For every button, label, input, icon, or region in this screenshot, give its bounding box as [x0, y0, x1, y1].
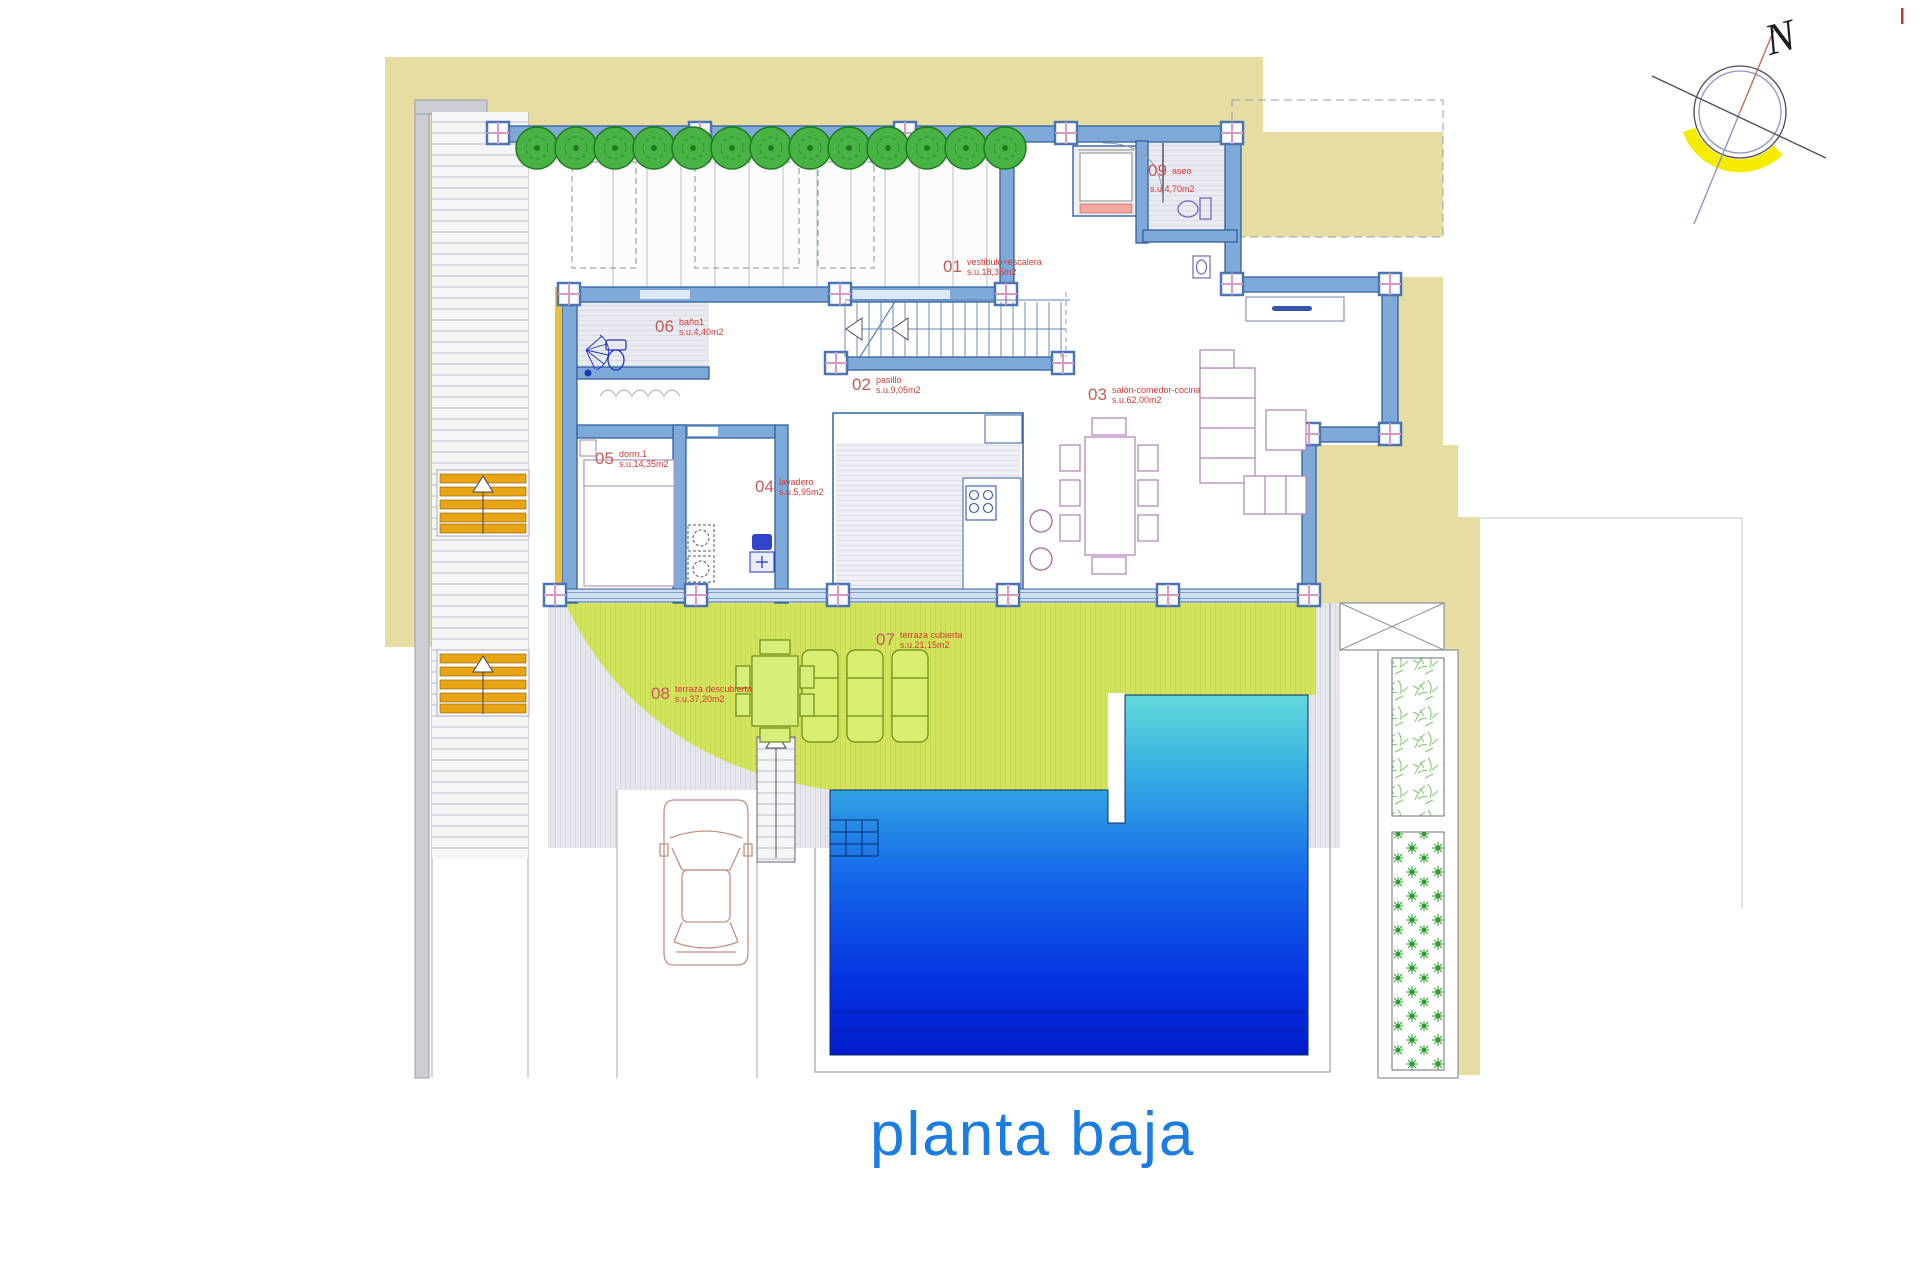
plan-title: planta baja [870, 1100, 1195, 1169]
svg-text:01: 01 [943, 257, 962, 276]
svg-text:05: 05 [595, 449, 614, 468]
svg-text:lavadero: lavadero [779, 477, 814, 487]
wall-east-lower [1302, 427, 1316, 603]
party-wall-highlight [555, 287, 562, 603]
compass-rose: N [1652, 9, 1826, 224]
svg-text:aseo: aseo [1172, 166, 1192, 176]
stair-direction-arrow [892, 318, 908, 340]
wall-living-north [1225, 277, 1398, 292]
dining-table-set [1060, 418, 1158, 574]
svg-text:s.u.5,95m2: s.u.5,95m2 [779, 487, 824, 497]
svg-text:s.u.21,15m2: s.u.21,15m2 [900, 640, 950, 650]
wall-east-upper [1382, 277, 1398, 442]
room-label-01: 01 vestibulo+escalera s.u.18,35m2 [943, 257, 1042, 277]
exterior-stair-lower [437, 650, 529, 716]
svg-text:06: 06 [655, 317, 674, 336]
room-label-05: 05 dorm.1 s.u.14,35m2 [595, 449, 669, 469]
sideboard [1246, 297, 1344, 321]
floor-plan-page: N 01 vestibulo+escalera s.u.18,35m2 02 p… [0, 0, 1920, 1280]
compass-cross-line [1652, 76, 1826, 158]
loveseat [1244, 476, 1306, 514]
svg-text:07: 07 [876, 630, 895, 649]
sofa-group [1200, 350, 1306, 514]
compass-yellow-arc [1689, 130, 1778, 166]
svg-text:s.u.4,70m2: s.u.4,70m2 [1150, 184, 1195, 194]
svg-text:08: 08 [651, 684, 670, 703]
svg-text:02: 02 [852, 375, 871, 394]
wall-bath1-south [577, 367, 709, 379]
svg-text:s.u.37,20m2: s.u.37,20m2 [675, 694, 725, 704]
svg-text:terraza descubierta: terraza descubierta [675, 684, 752, 694]
compass-north-label: N [1759, 9, 1804, 65]
glass-wall-south [548, 589, 1316, 602]
laundry-sink [750, 534, 774, 572]
kitchen-appliance [985, 415, 1022, 443]
svg-text:04: 04 [755, 477, 774, 496]
washing-machines [688, 525, 714, 582]
svg-text:03: 03 [1088, 385, 1107, 404]
edge-registration-mark [1901, 8, 1904, 24]
skylight-box [1340, 603, 1444, 650]
svg-text:baño1: baño1 [679, 317, 704, 327]
boundary-wall-left [415, 100, 429, 1078]
window-opening [640, 290, 690, 299]
boundary-neighbor-lines [1480, 518, 1742, 908]
wall-west [562, 287, 577, 603]
plot-tan-upper-right [1225, 132, 1443, 237]
vestibule-sink [1193, 256, 1210, 278]
elevator [1073, 146, 1139, 216]
wall-laundry-east [775, 425, 788, 603]
room-label-03: 03 salón-comedor-cocina s.u.62,00m2 [1088, 385, 1201, 405]
door-opening [688, 427, 718, 436]
room-label-06: 06 baño1 s.u.4,40m2 [655, 317, 724, 337]
svg-text:vestibulo+escalera: vestibulo+escalera [967, 257, 1042, 267]
garden-strip [1340, 603, 1458, 1078]
stair-direction-arrow [846, 318, 862, 340]
closet-scallops [600, 390, 680, 396]
svg-text:pasillo: pasillo [876, 375, 902, 385]
coffee-table [1266, 410, 1306, 450]
wall-hall-south [830, 357, 1070, 370]
wall-aseo-east [1225, 126, 1241, 292]
floor-plan-drawing: N 01 vestibulo+escalera s.u.18,35m2 02 p… [0, 0, 1920, 1280]
svg-text:salón-comedor-cocina: salón-comedor-cocina [1112, 385, 1201, 395]
svg-text:s.u.9,05m2: s.u.9,05m2 [876, 385, 921, 395]
svg-text:terraza cubierta: terraza cubierta [900, 630, 963, 640]
sun-lounger [892, 650, 928, 742]
exterior-stair-upper [437, 470, 529, 536]
side-walkway [432, 112, 529, 858]
svg-text:dorm.1: dorm.1 [619, 449, 647, 459]
svg-text:s.u.14,35m2: s.u.14,35m2 [619, 459, 669, 469]
pool-divider-wall [1108, 693, 1125, 825]
kitchen-stool [1030, 548, 1052, 570]
kitchen-block [833, 413, 1023, 592]
svg-text:s.u.18,35m2: s.u.18,35m2 [967, 267, 1017, 277]
wall-aseo-south [1143, 230, 1237, 242]
svg-text:s.u.4,40m2: s.u.4,40m2 [679, 327, 724, 337]
wall-bedroom-east [673, 425, 686, 603]
room-label-04: 04 lavadero s.u.5,95m2 [755, 477, 824, 497]
room-label-02: 02 pasillo s.u.9,05m2 [852, 375, 921, 395]
kitchen-stool [1030, 510, 1052, 532]
svg-text:s.u.62,00m2: s.u.62,00m2 [1112, 395, 1162, 405]
planter-shrubs [1392, 832, 1444, 1070]
pool-access-stair [757, 732, 795, 862]
pergola [572, 145, 1005, 292]
svg-text:09: 09 [1148, 161, 1167, 180]
sun-lounger [847, 650, 883, 742]
planter-grasses [1392, 658, 1444, 816]
boundary-wall-top [415, 100, 487, 114]
